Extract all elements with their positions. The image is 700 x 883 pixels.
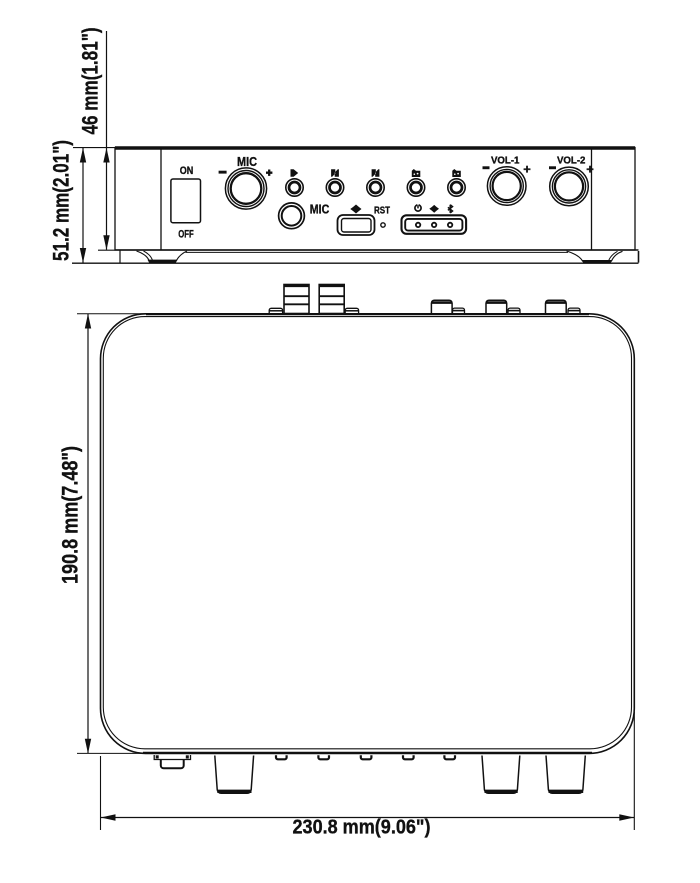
svg-text:+: + bbox=[586, 162, 594, 177]
svg-text:VOL-1: VOL-1 bbox=[491, 155, 520, 166]
svg-text:51.2 mm(2.01"): 51.2 mm(2.01") bbox=[49, 140, 74, 261]
svg-text:ON: ON bbox=[180, 165, 194, 177]
svg-text:VOL-2: VOL-2 bbox=[557, 155, 586, 166]
svg-text:OFF: OFF bbox=[178, 229, 194, 241]
svg-text:RST: RST bbox=[374, 205, 390, 217]
svg-text:46 mm(1.81"): 46 mm(1.81") bbox=[77, 28, 102, 135]
svg-text:190.8 mm(7.48"): 190.8 mm(7.48") bbox=[57, 446, 82, 584]
svg-text:+: + bbox=[523, 162, 531, 177]
svg-text:MIC: MIC bbox=[237, 155, 257, 169]
svg-text:MIC: MIC bbox=[310, 203, 330, 217]
svg-text:230.8 mm(9.06"): 230.8 mm(9.06") bbox=[293, 816, 431, 839]
